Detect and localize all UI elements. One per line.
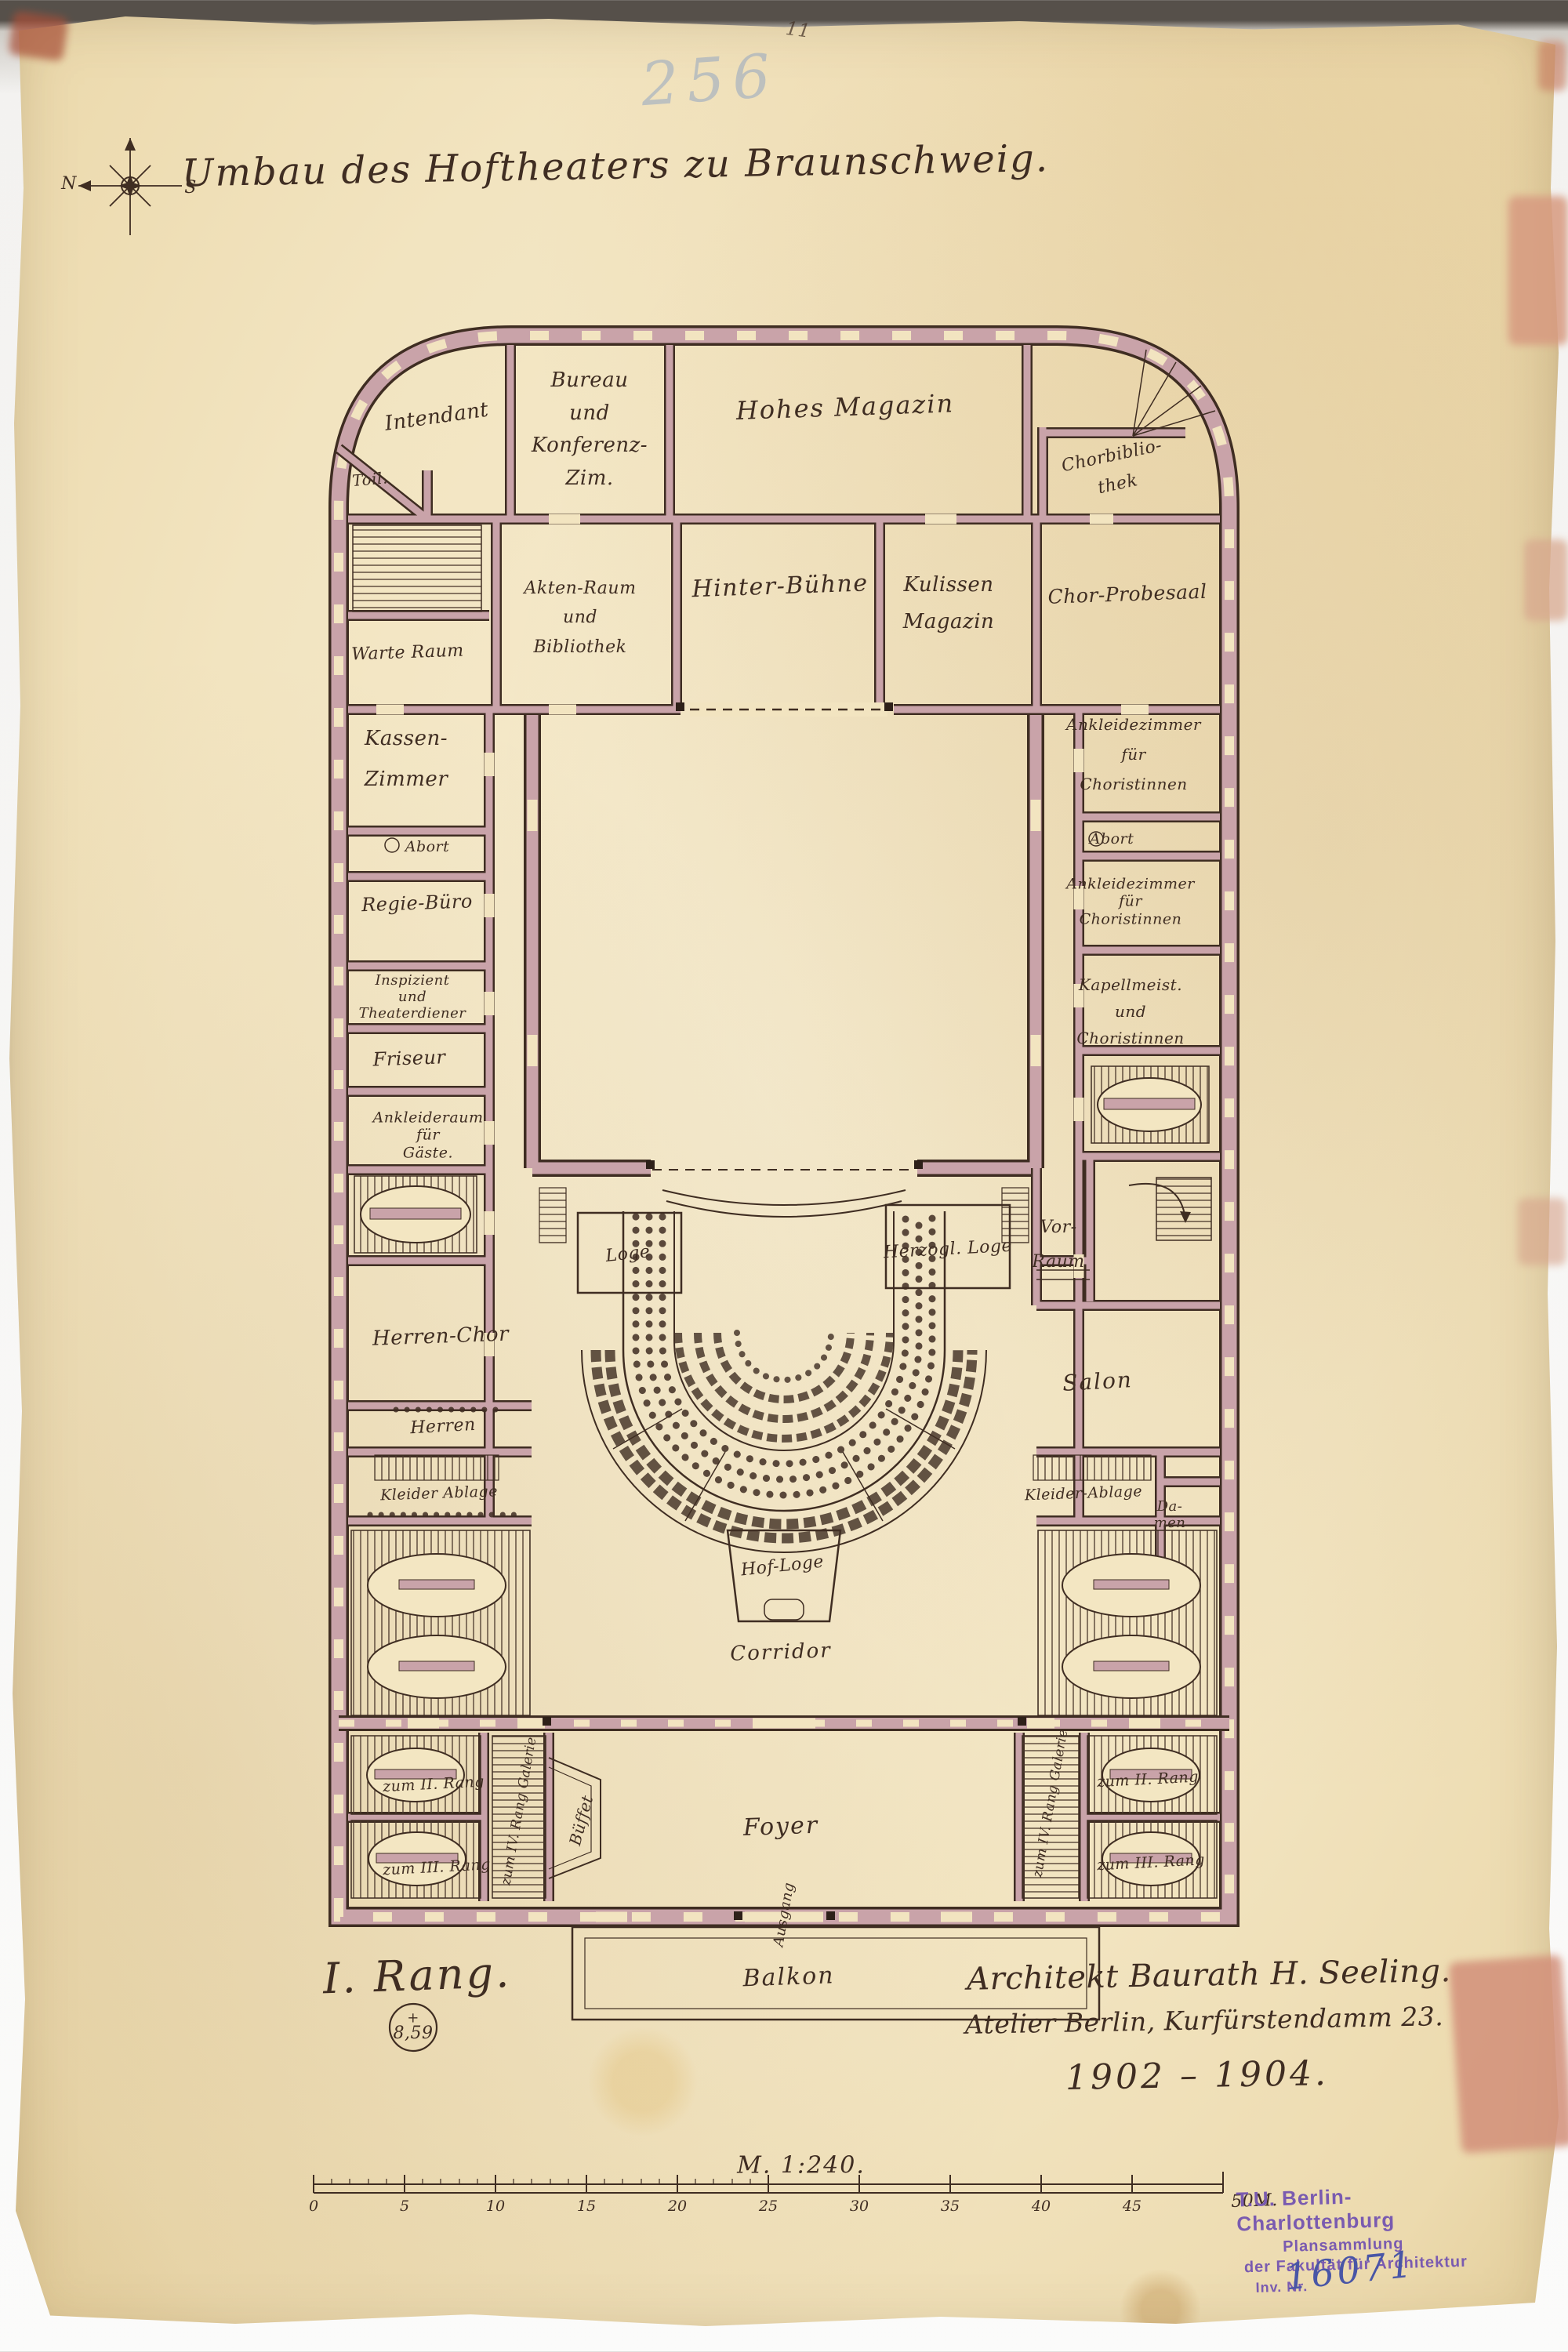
scale-tick-0: 0 <box>309 2198 318 2215</box>
scale-tick-15: 15 <box>577 2198 596 2215</box>
stage-walls <box>532 710 1036 1168</box>
room-label-warte-raum: Warte Raum <box>351 641 464 666</box>
scale-tick-35: 35 <box>941 2198 960 2215</box>
room-label-ankleide-choristinnen-oben: Ankleidezimmer für Choristinnen <box>1066 710 1201 799</box>
corner-mark: 11 <box>784 17 811 42</box>
years-label: 1902 – 1904. <box>1065 2053 1330 2099</box>
tape-stain-top-right <box>1538 41 1566 91</box>
room-label-kassen-zimmer: Kassen- Zimmer <box>365 718 448 800</box>
scale-text: M. 1:240. <box>737 2151 866 2179</box>
compass-north-label: N <box>61 174 77 194</box>
room-label-inspizient: Inspizient und Theaterdiener <box>359 972 466 1022</box>
room-label-abort-links: Abort <box>405 838 450 855</box>
tape-stain-bottom-right <box>1449 1955 1568 2153</box>
scale-tick-10: 10 <box>486 2198 505 2215</box>
compass-rose-icon <box>78 138 182 235</box>
scale-tick-30: 30 <box>850 2198 869 2215</box>
scanned-architectural-sheet: { "page": { "title": "Umbau des Hoftheat… <box>0 0 1568 2352</box>
scale-tick-45: 45 <box>1123 2198 1142 2215</box>
room-label-vor-raum: Vor- Raum <box>1032 1210 1084 1279</box>
room-label-salon: Salon <box>1062 1367 1133 1396</box>
room-label-ankleideraum-gaeste: Ankleideraum für Gäste. <box>373 1109 484 1161</box>
room-label-kulissen-magazin: Kulissen Magazin <box>903 567 995 641</box>
room-label-regie-buero: Regie-Büro <box>361 890 474 916</box>
scale-tick-20: 20 <box>668 2198 687 2215</box>
room-label-bureau: Bureau und Konferenz- Zim. <box>532 365 648 495</box>
label-balkon: Balkon <box>742 1962 835 1992</box>
scale-tick-40: 40 <box>1032 2198 1051 2215</box>
room-label-toilette: Toil. <box>351 469 388 490</box>
elevation-value: 8,59 <box>394 2024 434 2044</box>
label-corridor: Corridor <box>730 1639 832 1666</box>
scale-tick-5: 5 <box>400 2198 409 2215</box>
tape-stain-top-left <box>8 10 68 61</box>
room-label-kapellmeister: Kapellmeist. und Choristinnen <box>1076 971 1184 1051</box>
room-label-ankleide-choristinnen-unten: Ankleidezimmer für Choristinnen <box>1066 875 1195 927</box>
tape-stain-right-mid <box>1524 539 1568 621</box>
compass-south-label: S <box>184 178 197 198</box>
tape-stain-right-lower <box>1518 1198 1566 1265</box>
room-label-friseur: Friseur <box>372 1046 446 1071</box>
stamp-line1: T.U. Berlin-Charlottenburg <box>1236 2181 1504 2237</box>
room-label-damen: Da- men <box>1154 1498 1186 1531</box>
label-foyer: Foyer <box>742 1812 818 1842</box>
floor-plan-drawing <box>0 0 1568 2352</box>
room-label-herren-chor: Herren-Chor <box>372 1323 509 1352</box>
pencil-sheet-number: 256 <box>639 40 781 120</box>
scale-tick-25: 25 <box>759 2198 778 2215</box>
door-pivot-marks <box>543 702 1026 1920</box>
room-label-akten-raum: Akten-Raum und Bibliothek <box>524 574 637 662</box>
floor-title: I. Rang. <box>322 1947 512 2004</box>
tape-stain-right-upper <box>1508 196 1568 345</box>
room-label-abort-rechts: Abort <box>1090 830 1134 848</box>
room-label-herren: Herren <box>410 1415 477 1439</box>
